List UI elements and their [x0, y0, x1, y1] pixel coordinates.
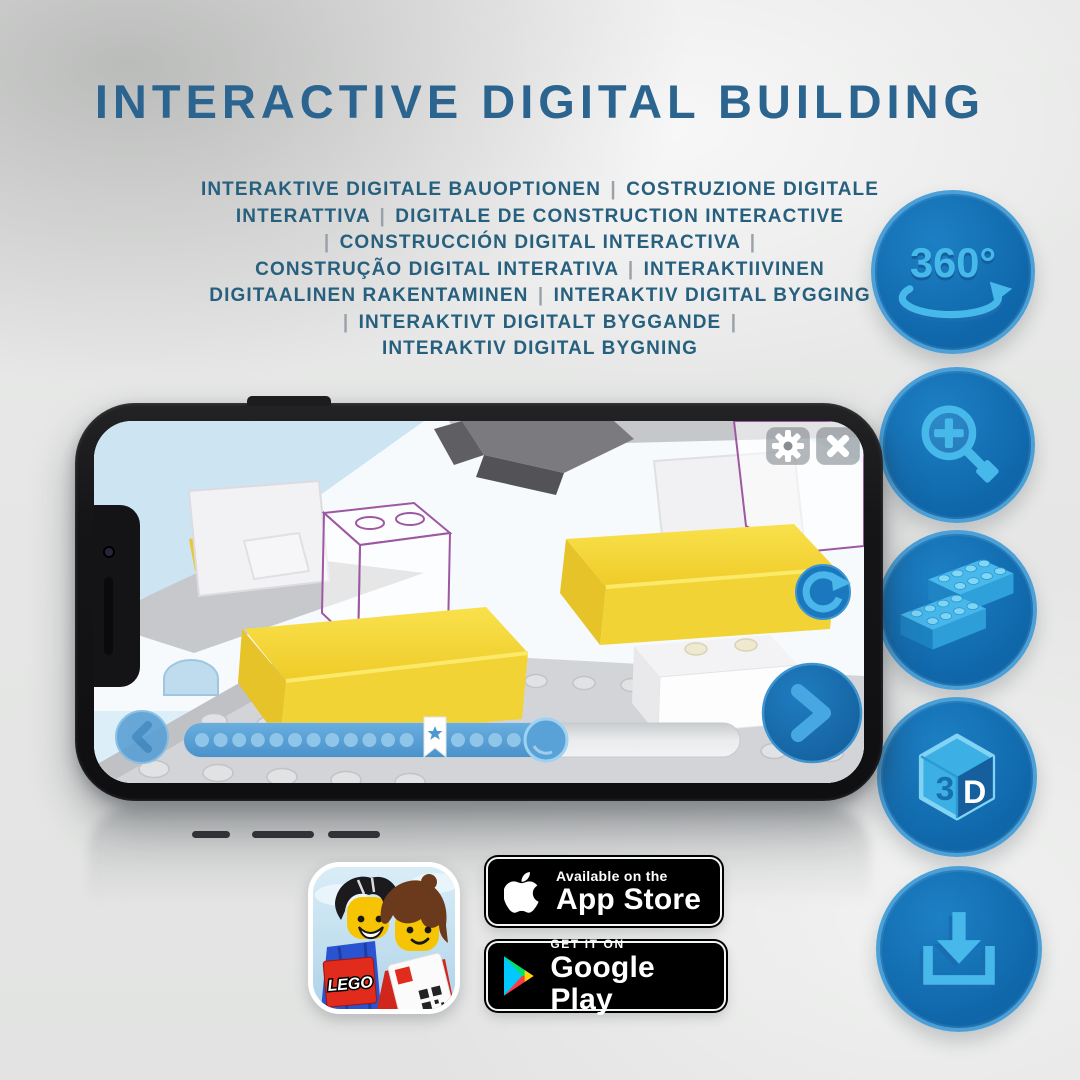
- step-progress-bar[interactable]: [184, 717, 740, 761]
- lego-logo: LEGO: [323, 957, 377, 1007]
- yellow-brick-right: [560, 524, 836, 645]
- download-icon: [900, 890, 1018, 1008]
- phone-screen: [94, 421, 864, 783]
- building-app-screen: [94, 421, 864, 783]
- subtitle-line: INTERATTIVA | DIGITALE DE CONSTRUCTION I…: [150, 204, 930, 231]
- page-title: INTERACTIVE DIGITAL BUILDING: [0, 74, 1080, 129]
- rotate-360-icon: 360° 360°: [889, 208, 1017, 336]
- feature-zoom-in: [879, 367, 1035, 523]
- subtitle-line: INTERAKTIVE DIGITALE BAUOPTIONEN | COSTR…: [150, 177, 930, 204]
- app-store-tagline: Available on the: [556, 868, 701, 884]
- close-button[interactable]: [816, 427, 860, 465]
- mute-switch: [192, 831, 230, 838]
- marketing-panel: INTERACTIVE DIGITAL BUILDING INTERAKTIVE…: [0, 0, 1080, 1080]
- lego-app-art: LEGO: [313, 867, 455, 1009]
- google-play-badge[interactable]: GET IT ON Google Play: [486, 941, 726, 1011]
- feature-360-rotation: 360° 360°: [871, 190, 1035, 354]
- subtitle-line: | INTERAKTIVT DIGITALT BYGGANDE |: [150, 310, 930, 337]
- app-store-badge[interactable]: Available on the App Store: [486, 857, 722, 926]
- phone-reflection: [88, 806, 870, 936]
- svg-text:D: D: [963, 774, 986, 810]
- subtitle-line: INTERAKTIV DIGITAL BYGNING: [150, 336, 930, 363]
- subtitle-line: CONSTRUÇÃO DIGITAL INTERATIVA | INTERAKT…: [150, 257, 930, 284]
- google-play-logo-icon: [504, 955, 536, 997]
- front-camera: [104, 547, 114, 557]
- next-step-button[interactable]: [763, 664, 861, 762]
- feature-download: [876, 866, 1042, 1032]
- settings-button[interactable]: [766, 427, 810, 465]
- apple-logo-icon: [504, 869, 542, 915]
- volume-up-button: [252, 831, 314, 838]
- smartphone: [75, 403, 883, 801]
- subtitle-line: | CONSTRUCCIÓN DIGITAL INTERACTIVA |: [150, 230, 930, 257]
- zoom-in-icon: [903, 391, 1011, 499]
- feature-brick-building: [877, 530, 1037, 690]
- camera-notch: [94, 505, 140, 687]
- google-play-name: Google Play: [550, 952, 708, 1016]
- app-store-name: App Store: [556, 884, 701, 916]
- gear-icon: [772, 430, 804, 462]
- feature-3d-view: 3 D: [877, 697, 1037, 857]
- multilingual-subtitle: INTERAKTIVE DIGITALE BAUOPTIONEN | COSTR…: [150, 177, 930, 363]
- arch-window-piece: [164, 660, 218, 695]
- speaker-slit: [104, 577, 113, 655]
- rotate-button[interactable]: [796, 565, 851, 619]
- svg-text:360°: 360°: [910, 239, 996, 286]
- svg-text:3: 3: [936, 771, 955, 808]
- lego-app-icon[interactable]: LEGO: [308, 862, 460, 1014]
- lego-bricks-icon: [896, 549, 1018, 671]
- volume-down-button: [328, 831, 380, 838]
- previous-step-button[interactable]: [116, 711, 168, 763]
- cube-3d-icon: 3 D: [896, 716, 1018, 838]
- google-play-tagline: GET IT ON: [550, 936, 708, 952]
- power-button: [247, 396, 331, 406]
- yellow-brick-left: [238, 607, 528, 741]
- subtitle-line: DIGITAALINEN RAKENTAMINEN | INTERAKTIV D…: [150, 283, 930, 310]
